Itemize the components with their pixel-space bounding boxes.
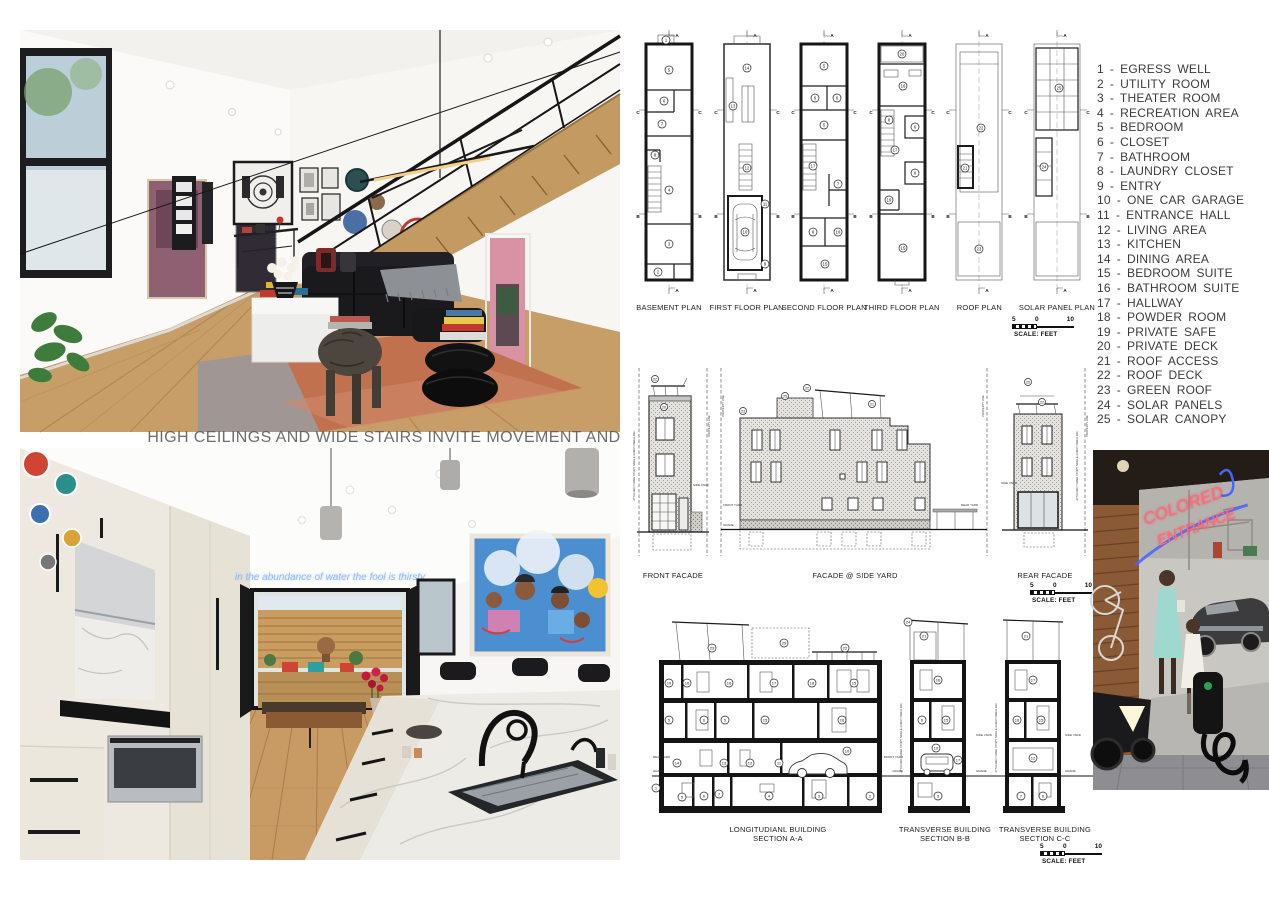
plan-label: BASEMENT PLAN — [636, 304, 701, 313]
svg-text:24: 24 — [906, 619, 911, 624]
car-front-icon — [921, 754, 953, 775]
legend-item: 23 - GREEN ROOF — [1097, 383, 1269, 398]
elevation-label-front: FRONT FACADE — [633, 572, 713, 581]
legend-item: 5 - BEDROOM — [1097, 120, 1269, 135]
svg-text:16: 16 — [836, 230, 841, 235]
front-facade-drawing: SIDE YARD — [637, 378, 710, 550]
legend-item: 24 - SOLAR PANELS — [1097, 398, 1269, 413]
section-aa-drawing: REAR YARD FRONT YARD GRADE GRADE — [652, 622, 904, 813]
svg-text:22: 22 — [805, 386, 809, 390]
svg-text:16: 16 — [1015, 717, 1020, 722]
svg-text:15: 15 — [763, 717, 768, 722]
svg-text:A: A — [831, 33, 835, 38]
legend-item: 7 - BATHROOM — [1097, 150, 1269, 165]
legend-item: 8 - LAUNDRY CLOSET — [1097, 164, 1269, 179]
glass-doors — [1018, 492, 1058, 528]
svg-text:SIDE YARD: SIDE YARD — [976, 733, 993, 737]
svg-text:13: 13 — [722, 760, 727, 765]
svg-text:SIDE YARD: SIDE YARD — [1065, 733, 1082, 737]
svg-text:16: 16 — [727, 680, 732, 685]
svg-text:A: A — [1063, 288, 1067, 293]
svg-text:A: A — [753, 288, 757, 293]
legend-item: 1 - EGRESS WELL — [1097, 62, 1269, 77]
room-fixtures — [682, 670, 869, 798]
legend-item: 3 - THEATER ROOM — [1097, 91, 1269, 106]
svg-text:A: A — [986, 288, 990, 293]
scale-bar-sections: 5010 SCALE: FEET — [1040, 843, 1102, 865]
svg-text:B: B — [714, 214, 718, 219]
section-longitudinal-aa: REAR YARD FRONT YARD GRADE GRADE 2325221… — [652, 608, 904, 823]
svg-text:B: B — [636, 214, 640, 219]
svg-text:13: 13 — [730, 104, 735, 109]
legend-item: 6 - CLOSET — [1097, 135, 1269, 150]
presentation-board: HIGH CEILINGS AND WIDE STAIRS INVITE MOV… — [0, 0, 1269, 900]
legend-item: 20 - PRIVATE DECK — [1097, 339, 1269, 354]
svg-text:GRADE: GRADE — [1065, 769, 1076, 773]
scale-bar-elevations: 5010 SCALE: FEET — [1030, 582, 1092, 604]
svg-text:17: 17 — [772, 680, 777, 685]
rear-facade-drawing: SIDE YARD — [1001, 396, 1088, 547]
svg-text:25: 25 — [1057, 86, 1062, 91]
svg-text:ATTACHED THREE STORY SINGLE-FA: ATTACHED THREE STORY SINGLE-FAMILY DWELL… — [994, 703, 998, 772]
elevation-label-side: FACADE @ SIDE YARD — [715, 572, 995, 581]
plan-second-floor: AACCBB566517716815 SECOND FLOOR PLAN — [788, 28, 860, 313]
section-label-cc: TRANSVERSE BUILDINGSECTION C-C — [985, 826, 1105, 843]
svg-text:12: 12 — [1031, 755, 1036, 760]
svg-text:A: A — [908, 33, 912, 38]
svg-text:19: 19 — [886, 198, 891, 203]
plan-label: SECOND FLOOR PLAN — [782, 304, 867, 313]
elevation-label-rear: REAR FACADE — [1000, 572, 1090, 581]
legend-item: 25 - SOLAR CANOPY — [1097, 412, 1269, 427]
svg-text:15: 15 — [1039, 717, 1044, 722]
svg-text:11: 11 — [762, 202, 767, 207]
svg-text:PROPERTY LINE: PROPERTY LINE — [721, 395, 725, 417]
svg-text:21: 21 — [922, 633, 927, 638]
rear-pergola — [933, 509, 977, 529]
svg-text:10: 10 — [845, 748, 850, 753]
svg-text:20: 20 — [662, 405, 666, 409]
svg-text:ATTACHED THREE STORY SINGLE-FA: ATTACHED THREE STORY SINGLE-FAMILY DWELL… — [899, 703, 903, 772]
svg-text:in the abundance of water the: in the abundance of water the fool is th… — [235, 572, 426, 583]
svg-text:21: 21 — [963, 166, 968, 171]
svg-text:SIDE YARD: SIDE YARD — [1001, 481, 1018, 485]
ceiling-light — [1117, 460, 1129, 472]
footings — [749, 532, 926, 546]
svg-text:A: A — [675, 288, 679, 293]
svg-text:16: 16 — [936, 677, 941, 682]
svg-text:10: 10 — [934, 745, 939, 750]
plan-roof: AACCBB222123 ROOF PLAN — [943, 28, 1015, 313]
svg-text:GRADE: GRADE — [653, 769, 664, 773]
legend-item: 19 - PRIVATE SAFE — [1097, 325, 1269, 340]
svg-text:21: 21 — [870, 402, 874, 406]
svg-text:19: 19 — [667, 680, 672, 685]
partitions — [681, 665, 850, 806]
svg-text:PROPERTY LINE: PROPERTY LINE — [1085, 415, 1089, 437]
svg-text:15: 15 — [823, 262, 828, 267]
plan-label: ROOF PLAN — [957, 304, 1002, 313]
svg-text:25: 25 — [783, 394, 787, 398]
entry-door — [679, 498, 688, 530]
svg-text:23: 23 — [710, 645, 715, 650]
svg-text:A: A — [1063, 33, 1067, 38]
svg-text:B: B — [1024, 214, 1028, 219]
svg-text:B: B — [869, 214, 873, 219]
section-transverse-cc: ATTACHED THREE STORY SINGLE-FAMILY DWELL… — [993, 608, 1093, 823]
colorful-painting — [472, 530, 608, 654]
plan-third-floor: AACCBB2016861761915 THIRD FLOOR PLAN — [866, 28, 938, 313]
svg-text:C: C — [854, 110, 858, 115]
svg-text:16: 16 — [900, 84, 905, 89]
svg-text:24: 24 — [1042, 165, 1047, 170]
svg-text:17: 17 — [956, 757, 961, 762]
svg-text:12: 12 — [748, 760, 753, 765]
svg-text:FRONT YARD: FRONT YARD — [723, 503, 743, 507]
svg-text:17: 17 — [1031, 677, 1036, 682]
plan-label: THIRD FLOOR PLAN — [864, 304, 940, 313]
kitchen-photo: in the abundance of water the fool is th… — [20, 448, 620, 860]
svg-text:16: 16 — [840, 717, 845, 722]
living-room-photo: HIGH CEILINGS AND WIDE STAIRS INVITE MOV… — [20, 30, 620, 432]
svg-text:C: C — [698, 110, 702, 115]
elevation-markers: 2522 — [1025, 379, 1046, 406]
svg-text:B: B — [792, 214, 796, 219]
legend-item: 2 - UTILITY ROOM — [1097, 77, 1269, 92]
scale-bar-plans: 5010 SCALE: FEET — [1012, 316, 1074, 338]
svg-text:17: 17 — [811, 164, 816, 169]
elevation-front-facade: PROPERTY LINE ATTACHED THREE STORY SINGL… — [633, 366, 713, 566]
svg-text:14: 14 — [675, 760, 680, 765]
legend-item: 10 - ONE CAR GARAGE — [1097, 193, 1269, 208]
car-side-icon — [789, 753, 847, 777]
legend-item: 12 - LIVING AREA — [1097, 223, 1269, 238]
svg-text:C: C — [1009, 110, 1013, 115]
elevation-side-yard: PROPERTY LINE PROPERTY LINE — [715, 366, 995, 566]
svg-text:C: C — [869, 110, 873, 115]
svg-text:B: B — [776, 214, 780, 219]
svg-text:18: 18 — [810, 680, 815, 685]
legend-item: 14 - DINING AREA — [1097, 252, 1269, 267]
svg-text:20: 20 — [899, 52, 904, 57]
svg-text:GRADE: GRADE — [976, 769, 987, 773]
svg-text:SIDE YARD: SIDE YARD — [693, 483, 710, 487]
svg-text:15: 15 — [900, 246, 905, 251]
svg-text:C: C — [931, 110, 935, 115]
plan-first-floor: AACCBB14131211109 FIRST FLOOR PLAN — [711, 28, 783, 313]
side-facade-drawing: FRONT YARD REAR YARD GRADE — [721, 390, 987, 549]
legend-item: 22 - ROOF DECK — [1097, 368, 1269, 383]
svg-text:A: A — [908, 288, 912, 293]
svg-text:B: B — [931, 214, 935, 219]
svg-text:B: B — [854, 214, 858, 219]
garage-photo: COLORED COLORED ENTRANCE ENTRANCE — [1093, 450, 1269, 790]
legend-item: 18 - POWDER ROOM — [1097, 310, 1269, 325]
svg-text:C: C — [792, 110, 796, 115]
svg-text:B: B — [947, 214, 951, 219]
svg-text:15: 15 — [944, 717, 949, 722]
svg-text:B: B — [1086, 214, 1090, 219]
svg-text:23: 23 — [977, 247, 982, 252]
atv-icon — [1092, 692, 1154, 769]
legend-item: 21 - ROOF ACCESS — [1097, 354, 1269, 369]
svg-text:REAR YARD: REAR YARD — [653, 755, 671, 759]
svg-text:PROPERTY LINE: PROPERTY LINE — [981, 395, 985, 417]
svg-text:21: 21 — [1024, 633, 1029, 638]
svg-text:16: 16 — [685, 680, 690, 685]
svg-text:10: 10 — [742, 230, 747, 235]
svg-text:23: 23 — [741, 409, 745, 413]
section-label-aa: LONGITUDIANL BUILDINGSECTION A-A — [652, 826, 904, 843]
svg-text:REAR YARD: REAR YARD — [961, 503, 979, 507]
svg-text:B: B — [1009, 214, 1013, 219]
svg-text:ATTACHED THREE STORY SINGLE-FA: ATTACHED THREE STORY SINGLE-FAMILY DWELL… — [632, 431, 636, 500]
legend-item: 17 - HALLWAY — [1097, 296, 1269, 311]
svg-text:A: A — [753, 33, 757, 38]
legend-item: 13 - KITCHEN — [1097, 237, 1269, 252]
svg-text:25: 25 — [782, 640, 787, 645]
svg-text:C: C — [714, 110, 718, 115]
floor-plans-row: AACCBB15678432 BASEMENT PLAN — [633, 28, 1093, 313]
section-transverse-bb: ATTACHED THREE STORY SINGLE-FAMILY DWELL… — [898, 608, 998, 823]
svg-text:22: 22 — [979, 126, 984, 131]
svg-text:C: C — [947, 110, 951, 115]
legend-item: 4 - RECREATION AREA — [1097, 106, 1269, 121]
svg-text:ATTACHED THREE STORY SINGLE-FA: ATTACHED THREE STORY SINGLE-FAMILY DWELL… — [1075, 431, 1079, 500]
svg-text:C: C — [1024, 110, 1028, 115]
legend-item: 16 - BATHROOM SUITE — [1097, 281, 1269, 296]
svg-text:12: 12 — [744, 166, 749, 171]
elevation-rear-facade: PROPERTY LINE ATTACHED THREE STORY SINGL… — [1000, 366, 1090, 566]
svg-text:A: A — [831, 288, 835, 293]
room-legend: 1 - EGRESS WELL2 - UTILITY ROOM3 - THEAT… — [1097, 62, 1269, 427]
window — [20, 48, 112, 278]
svg-text:A: A — [986, 33, 990, 38]
entry-door — [172, 176, 213, 250]
plan-basement: AACCBB15678432 BASEMENT PLAN — [633, 28, 705, 313]
svg-text:22: 22 — [653, 377, 657, 381]
legend-item: 9 - ENTRY — [1097, 179, 1269, 194]
svg-text:PROPERTY LINE: PROPERTY LINE — [707, 415, 711, 437]
svg-text:C: C — [776, 110, 780, 115]
svg-text:14: 14 — [744, 66, 749, 71]
svg-text:B: B — [698, 214, 702, 219]
svg-text:C: C — [1086, 110, 1090, 115]
plan-solar-panel: AACCBB2524 SOLAR PANEL PLAN — [1021, 28, 1093, 313]
svg-text:25: 25 — [1026, 380, 1030, 384]
mirror — [418, 580, 454, 654]
svg-text:A: A — [675, 33, 679, 38]
svg-text:15: 15 — [852, 680, 857, 685]
svg-text:C: C — [636, 110, 640, 115]
svg-text:22: 22 — [843, 645, 848, 650]
svg-text:22: 22 — [1040, 400, 1044, 404]
head-sculpture — [317, 637, 335, 655]
legend-item: 11 - ENTRANCE HALL — [1097, 208, 1269, 223]
plan-label: SOLAR PANEL PLAN — [1019, 304, 1095, 313]
plan-label: FIRST FLOOR PLAN — [709, 304, 783, 313]
legend-item: 15 - BEDROOM SUITE — [1097, 266, 1269, 281]
svg-text:17: 17 — [892, 148, 897, 153]
svg-text:GRADE: GRADE — [723, 523, 734, 527]
room-fixtures — [918, 670, 954, 797]
